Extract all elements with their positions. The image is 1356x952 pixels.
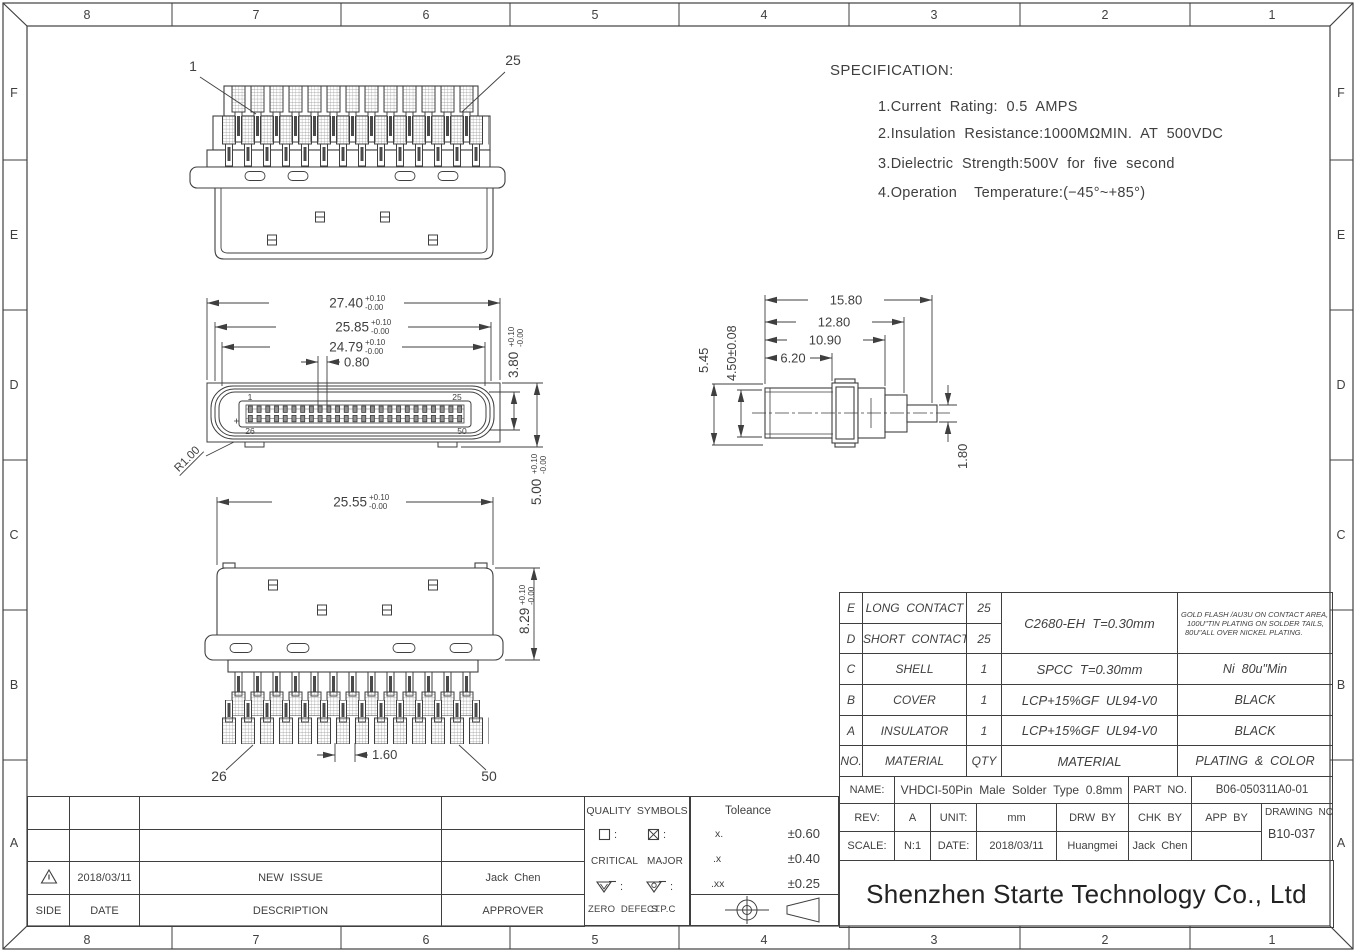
spec-item-temperature: 4.Operation Temperature:(−45°~+85°) — [878, 185, 1300, 201]
part-name-value: VHDCI-50Pin Male Solder Type 0.8mm — [895, 777, 1129, 804]
side-dim-body-height: 4.50±0.08 — [725, 325, 739, 381]
zero-defect-label: ZERO DEFECT — [588, 904, 660, 915]
bom-row-c: C SHELL 1 SPCC T=0.30mm Ni 80u"Min — [840, 654, 1333, 685]
revision-triangle-icon — [40, 868, 58, 885]
top-view: 1 25 — [189, 52, 521, 259]
grid-col-label: 1 — [1269, 933, 1276, 947]
tolerance-key-xxx: .xx — [711, 878, 724, 890]
bom-row-b: B COVER 1 LCP+15%GF UL94-V0 BLACK — [840, 685, 1333, 716]
tolerance-key-x: x. — [715, 828, 723, 840]
svg-text:24.79: 24.79 — [329, 340, 363, 355]
critical-square-icon — [598, 828, 611, 841]
spc-triangle-icon — [645, 879, 667, 894]
approver-header: APPROVER — [442, 895, 585, 927]
date-header: DATE — [70, 895, 140, 927]
grid-col-label: 3 — [931, 933, 938, 947]
revision-approver: Jack Chen — [442, 862, 585, 895]
app-by-value — [1192, 832, 1262, 861]
grid-col-label: 2 — [1102, 933, 1109, 947]
grid-col-label: 6 — [423, 8, 430, 22]
projection-angle-icon — [691, 895, 838, 925]
bottom-view: 25.55 +0.10 -0.00 8.29 +0.10 -0.00 1.60 … — [205, 493, 540, 784]
grid-col-label: 3 — [931, 8, 938, 22]
svg-text:+0.10: +0.10 — [518, 584, 527, 605]
svg-text:8.29: 8.29 — [517, 608, 532, 634]
pin1-callout: 1 — [189, 58, 197, 74]
svg-text:5.00: 5.00 — [529, 479, 544, 505]
front-pin-tr: 25 — [452, 392, 462, 402]
drw-by-value: Huangmei — [1057, 832, 1129, 861]
bom-table: E LONG CONTACT 25 C2680-EH T=0.30mm GOLD… — [839, 592, 1333, 777]
bottom-dim-pitch: 1.60 — [372, 747, 397, 762]
side-dim-flange-height: 5.45 — [696, 348, 711, 373]
grid-row-label: D — [9, 378, 18, 392]
revision-header-row: SIDE DATE DESCRIPTION APPROVER — [28, 895, 585, 927]
top-view-pin-row-lower — [220, 116, 489, 167]
svg-text:+0.10: +0.10 — [507, 326, 516, 347]
revision-table: 2018/03/11 NEW ISSUE Jack Chen SIDE DATE… — [27, 796, 585, 927]
bottom-view-pin-row-lower — [220, 700, 489, 744]
name-label: NAME: — [840, 777, 895, 804]
specification-title: SPECIFICATION: — [830, 62, 1300, 79]
side-dim-total: 15.80 — [830, 293, 863, 308]
front-pin-br: 50 — [457, 426, 467, 436]
svg-text:-0.00: -0.00 — [365, 303, 384, 312]
spec-item-dielectric: 3.Dielectric Strength:500V for five seco… — [878, 156, 1300, 172]
bottom-dim-width: 25.55 +0.10 -0.00 — [333, 493, 390, 511]
part-no-value: B06-050311A0-01 — [1192, 777, 1333, 804]
side-header: SIDE — [28, 895, 70, 927]
grid-row-label: E — [1337, 228, 1345, 242]
revision-date: 2018/03/11 — [70, 862, 140, 895]
grid-col-label: 4 — [761, 933, 768, 947]
bom-row-e: E LONG CONTACT 25 C2680-EH T=0.30mm GOLD… — [840, 593, 1333, 624]
rev-label: REV: — [840, 804, 895, 832]
grid-row-label: A — [1337, 836, 1346, 850]
side-dim-block: 10.90 — [809, 333, 842, 348]
company-name-block: Shenzhen Starte Technology Co., Ltd — [839, 860, 1334, 928]
front-pin-bl: 26 — [245, 426, 255, 436]
pin25-callout: 25 — [505, 52, 521, 68]
svg-text:+0.10: +0.10 — [371, 318, 392, 327]
date-value: 2018/03/11 — [977, 832, 1057, 861]
major-crossed-square-icon — [647, 828, 660, 841]
front-pin-tl: 1 — [248, 392, 253, 402]
grid-col-label: 7 — [253, 933, 260, 947]
bottom-dim-height: 8.29 +0.10 -0.00 — [517, 584, 536, 634]
svg-text:-0.00: -0.00 — [539, 455, 548, 474]
grid-col-label: 8 — [84, 8, 91, 22]
tolerance-val-xx: ±0.40 — [788, 851, 820, 866]
svg-text:R1.00: R1.00 — [172, 444, 202, 474]
specification-block: SPECIFICATION: 1.Current Rating: 0.5 AMP… — [830, 62, 1300, 201]
tolerance-val-x: ±0.60 — [788, 826, 820, 841]
unit-value: mm — [977, 804, 1057, 832]
svg-text:+0.10: +0.10 — [365, 294, 386, 303]
svg-text:25.85: 25.85 — [335, 320, 369, 335]
side-dim-tail: 1.80 — [955, 444, 970, 469]
bom-row-a: A INSULATOR 1 LCP+15%GF UL94-V0 BLACK — [840, 716, 1333, 746]
zero-defect-triangle-icon — [595, 879, 617, 894]
svg-text:-0.00: -0.00 — [516, 328, 525, 347]
svg-text:25.55: 25.55 — [333, 495, 367, 510]
date-label: DATE: — [931, 832, 977, 861]
front-dim-radius: R1.00 — [171, 443, 204, 476]
grid-col-label: 8 — [84, 933, 91, 947]
svg-text:3.80: 3.80 — [506, 352, 521, 378]
drawing-no-value: B10-037 — [1262, 818, 1332, 841]
spc-label: S.P.C — [651, 904, 676, 915]
pin50-callout: 50 — [481, 768, 497, 784]
chk-by-label: CHK BY — [1129, 804, 1192, 832]
side-dim-step: 12.80 — [818, 315, 851, 330]
grid-row-label: C — [9, 528, 18, 542]
grid-col-label: 1 — [1269, 8, 1276, 22]
grid-col-label: 2 — [1102, 8, 1109, 22]
revision-row: 2018/03/11 NEW ISSUE Jack Chen — [28, 862, 585, 895]
unit-label: UNIT: — [931, 804, 977, 832]
quality-symbols-title: QUALITY SYMBOLS — [585, 805, 689, 817]
grid-col-label: 5 — [592, 8, 599, 22]
major-label: MAJOR — [647, 856, 683, 867]
front-dim-pitch: 0.80 — [344, 355, 369, 370]
svg-text:-0.00: -0.00 — [527, 586, 536, 605]
bom-header-row: NO. MATERIAL QTY MATERIAL PLATING & COLO… — [840, 746, 1333, 777]
part-no-label: PART NO. — [1129, 777, 1192, 804]
svg-text:-0.00: -0.00 — [371, 327, 390, 336]
bom-contact-plating-note: GOLD FLASH /AU3U ON CONTACT AREA, 100U"T… — [1178, 593, 1333, 654]
grid-row-label: C — [1336, 528, 1345, 542]
front-dim-width-shell: 27.40 +0.10 -0.00 — [329, 294, 386, 312]
svg-text:27.40: 27.40 — [329, 296, 363, 311]
spec-item-insulation: 2.Insulation Resistance:1000MΩMIN. AT 50… — [878, 126, 1300, 142]
svg-text:+0.10: +0.10 — [365, 338, 386, 347]
rev-value: A — [895, 804, 931, 832]
grid-row-label: F — [1337, 86, 1345, 100]
tolerance-val-xxx: ±0.25 — [788, 876, 820, 891]
grid-row-label: F — [10, 86, 18, 100]
front-view-pin-strip — [246, 405, 464, 423]
grid-row-label: E — [10, 228, 18, 242]
grid-col-label: 7 — [253, 8, 260, 22]
grid-row-label: B — [10, 678, 18, 692]
svg-text:-0.00: -0.00 — [369, 502, 388, 511]
pin26-callout: 26 — [211, 768, 227, 784]
side-view: 15.80 12.80 10.90 6.20 5.45 4.50±0.08 1.… — [696, 293, 970, 470]
title-block: NAME: VHDCI-50Pin Male Solder Type 0.8mm… — [839, 776, 1333, 861]
grid-row-label: D — [1336, 378, 1345, 392]
app-by-label: APP BY — [1192, 804, 1262, 832]
drawing-no-cell: DRAWING NO. B10-037 — [1262, 804, 1333, 861]
grid-row-label: A — [10, 836, 19, 850]
quality-symbols-block: QUALITY SYMBOLS : : CRITICAL MAJOR : : Z… — [584, 796, 690, 926]
front-dim-width-rim: 25.85 +0.10 -0.00 — [335, 318, 392, 336]
spec-item-current: 1.Current Rating: 0.5 AMPS — [878, 99, 1300, 115]
front-dim-shell-height: 5.00 +0.10 -0.00 — [529, 453, 548, 505]
chk-by-value: Jack Chen — [1129, 832, 1192, 861]
drawing-sheet: 8 7 6 5 4 3 2 1 8 7 6 5 4 3 2 1 F E D C … — [0, 0, 1356, 952]
front-view: 1 25 26 50 27.40 +0.10 -0.00 — [171, 294, 548, 505]
svg-text:+0.10: +0.10 — [530, 453, 539, 474]
tolerance-key-xx: .x — [713, 853, 721, 865]
company-name: Shenzhen Starte Technology Co., Ltd — [866, 879, 1307, 910]
scale-label: SCALE: — [840, 832, 895, 861]
critical-label: CRITICAL — [591, 856, 638, 867]
drw-by-label: DRW BY — [1057, 804, 1129, 832]
scale-value: N:1 — [895, 832, 931, 861]
front-dim-width-cavity: 24.79 +0.10 -0.00 — [329, 338, 386, 356]
bom-contact-material: C2680-EH T=0.30mm — [1002, 593, 1178, 654]
side-dim-body: 6.20 — [780, 351, 805, 366]
grid-col-label: 6 — [423, 933, 430, 947]
svg-text:+0.10: +0.10 — [369, 493, 390, 502]
drawing-no-label: DRAWING NO. — [1262, 804, 1332, 818]
grid-col-label: 5 — [592, 933, 599, 947]
tolerance-block: Toleance x. ±0.60 .x ±0.40 .xx ±0.25 — [690, 796, 839, 926]
front-dim-cavity-height: 3.80 +0.10 -0.00 — [506, 326, 525, 378]
grid-col-label: 4 — [761, 8, 768, 22]
tolerance-title: Toleance — [725, 805, 771, 817]
description-header: DESCRIPTION — [140, 895, 442, 927]
grid-row-label: B — [1337, 678, 1345, 692]
revision-description: NEW ISSUE — [140, 862, 442, 895]
